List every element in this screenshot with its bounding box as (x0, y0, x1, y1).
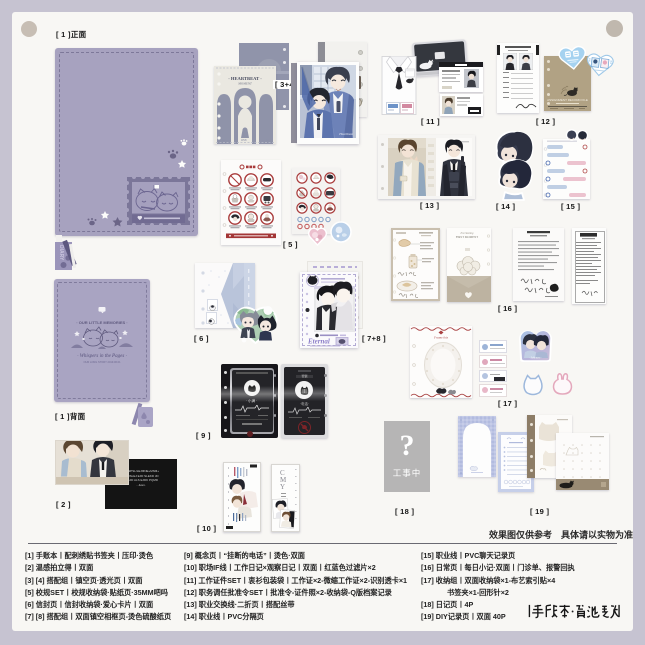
svg-text:JFL: JFL (266, 139, 271, 142)
svg-text:JFL: JFL (222, 139, 227, 142)
svg-text:Frame this: Frame this (433, 336, 449, 340)
svg-text:Eternal: Eternal (307, 338, 330, 346)
svg-text:MOMENT: MOMENT (237, 82, 252, 86)
svg-text:FIRST MOMENT: FIRST MOMENT (456, 235, 478, 239)
svg-text:· Whispers in the Pages ·: · Whispers in the Pages · (77, 354, 127, 359)
svg-text:Heartbeat: Heartbeat (338, 132, 354, 136)
svg-text:Y: Y (280, 483, 285, 491)
svg-text:· OUR LITTLE MEMORIES ·: · OUR LITTLE MEMORIES · (76, 320, 127, 325)
svg-text:WNB: WNB (241, 139, 247, 142)
svg-text:· Solienere ·: · Solienere · (529, 357, 542, 360)
svg-text:· HEARTBEAT ·: · HEARTBEAT · (228, 76, 262, 81)
svg-text:OUR LONG STORY 2019.06.01: OUR LONG STORY 2019.06.01 (83, 360, 121, 364)
